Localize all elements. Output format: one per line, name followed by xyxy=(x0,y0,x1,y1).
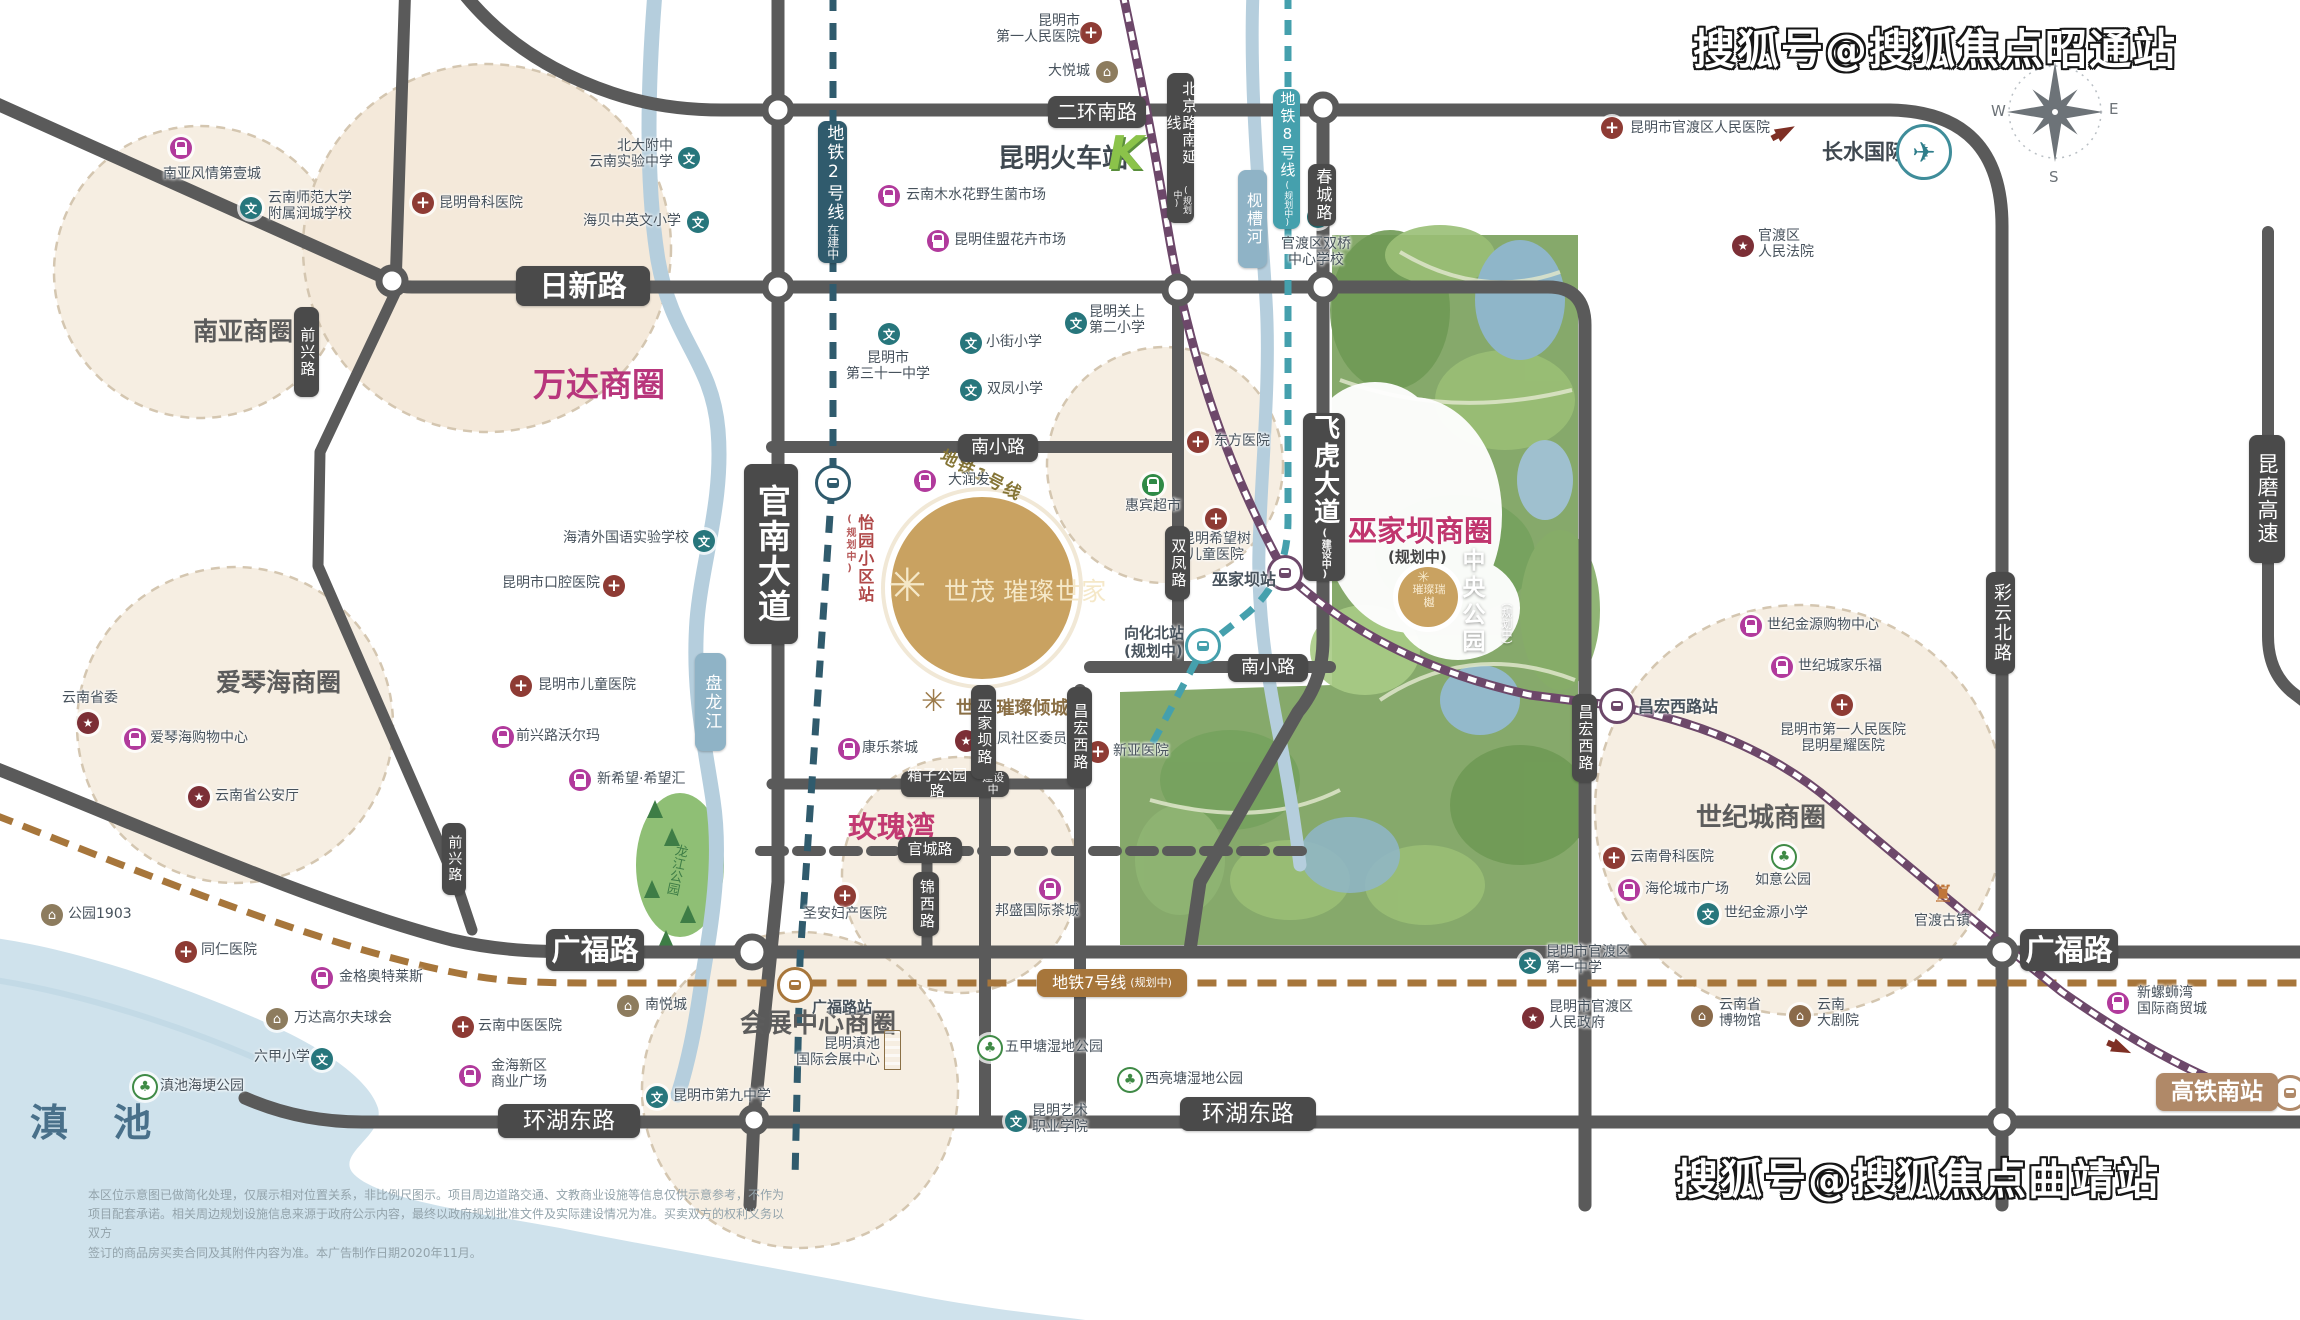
poi-label: 昆明市第一人民医院昆明星耀医院 xyxy=(1780,722,1906,754)
museum-icon: ⌂ xyxy=(1691,1005,1713,1027)
gov-icon: ★ xyxy=(188,786,210,808)
poi-label: 昆明市第三十一中学 xyxy=(846,350,930,382)
map-label-pill: 环湖东路 xyxy=(1180,1097,1316,1131)
shop-icon xyxy=(1740,615,1762,637)
airplane-glyph: ✈ xyxy=(1912,136,1935,169)
metro-station-label: 广福路站 xyxy=(812,998,872,1016)
bldg-icon: ⌂ xyxy=(1096,61,1118,83)
metro-station-label: 昌宏西路站 xyxy=(1638,697,1718,716)
shop-icon xyxy=(838,738,860,760)
school-icon: 文 xyxy=(678,147,700,169)
map-label-pill: 昌宏西路 xyxy=(1067,687,1092,787)
central-park-status: （规划中） xyxy=(1498,596,1514,651)
shop-icon xyxy=(170,137,192,159)
disclaimer-line-2: 项目配套承诺。相关周边规划设施信息来源于政府公示内容，最终以政府规划批准文件及实… xyxy=(88,1205,788,1243)
map-label-pill: 官南大道 xyxy=(744,464,798,644)
poi-label: 北大附中云南实验中学 xyxy=(589,138,673,170)
wujiaba-circle-status: (规划中) xyxy=(1388,546,1447,567)
map-label-pill: 锦西路 xyxy=(913,872,939,936)
metro-station-label: 怡园小区站(规划中) xyxy=(843,514,874,604)
poi-label: 海伦城市广场 xyxy=(1645,881,1729,897)
metro-station-icon xyxy=(777,967,813,1003)
hospital-icon: + xyxy=(510,675,532,697)
central-park-label: 中央公园 xyxy=(1454,548,1488,656)
map-label-pill: 枧槽河 xyxy=(1238,170,1267,268)
poi-label: 海清外国语实验学校 xyxy=(563,530,689,546)
metro-station-label: 巫家坝站 xyxy=(1212,570,1276,589)
poi-label: 海贝中英文小学 xyxy=(583,213,681,229)
poi-label: 圣安妇产医院 xyxy=(803,906,887,922)
area-title: 爱琴海商圈 xyxy=(216,663,341,699)
shop-icon xyxy=(2107,992,2129,1014)
map-label-pill: 春城路 xyxy=(1308,164,1336,226)
area-title: 世纪城商圈 xyxy=(1696,797,1826,834)
school-icon: 文 xyxy=(1005,1110,1027,1132)
school-icon: 文 xyxy=(240,197,262,219)
poi-label: 邦盛国际茶城 xyxy=(995,903,1079,919)
park-icon: ♣ xyxy=(1773,846,1795,868)
hospital-icon: + xyxy=(1080,22,1102,44)
poi-label: 昆明市儿童医院 xyxy=(538,677,636,693)
poi-label: 同仁医院 xyxy=(201,942,257,958)
poi-label: 昆明市官渡区人民政府 xyxy=(1549,999,1633,1031)
poi-label: 昆明希望树儿童医院 xyxy=(1181,531,1251,563)
poi-label: 云南大剧院 xyxy=(1817,997,1859,1029)
bldg-icon: ⌂ xyxy=(617,995,639,1017)
poi-label: 昆明市官渡区第一中学 xyxy=(1546,944,1630,976)
poi-label: 如意公园 xyxy=(1755,872,1811,888)
poi-label: 南亚风情第壹城 xyxy=(163,166,261,182)
map-label-pill: 环湖东路 xyxy=(498,1104,640,1138)
poi-label: 惠宾超市 xyxy=(1125,498,1181,514)
compass-west-label: W xyxy=(1991,102,2006,120)
poi-label: 大悦城 xyxy=(1048,63,1090,79)
poi-label: 云南中医医院 xyxy=(478,1018,562,1034)
hospital-icon: + xyxy=(1831,694,1853,716)
hospital-icon: + xyxy=(603,575,625,597)
shop-icon xyxy=(569,769,591,791)
shop-icon xyxy=(124,728,146,750)
map-label-pill: 北京路南延线(规划中) xyxy=(1167,73,1194,223)
school-icon: 文 xyxy=(1519,952,1541,974)
shop-icon xyxy=(1618,879,1640,901)
map-label-pill: 昆磨高速 xyxy=(2249,435,2285,563)
watermark-top: 搜狐号@搜狐焦点昭通站 xyxy=(1693,16,2177,77)
school-icon: 文 xyxy=(878,323,900,345)
poi-label: 云南省委 xyxy=(62,690,118,706)
poi-label: 新希望·希望汇 xyxy=(597,771,685,787)
poi-label: 世纪金源小学 xyxy=(1724,905,1808,921)
shop-icon xyxy=(1039,878,1061,900)
project-sub-flower-icon: ✳ xyxy=(921,684,946,719)
school-icon: 文 xyxy=(693,530,715,552)
map-label-pill: 彩云北路 xyxy=(1986,572,2015,674)
kunming-location-map: 搜狐号@搜狐焦点昭通站 搜狐号@搜狐焦点曲靖站 滇 池 本区位示意图已做简化处理… xyxy=(0,0,2300,1320)
map-label-pill: 地铁8号线(规划中) xyxy=(1273,89,1300,229)
metro-station-label: 向化北站(规划中) xyxy=(1124,624,1184,660)
poi-label: 昆明骨科医院 xyxy=(439,195,523,211)
poi-label: 云南木水花野生菌市场 xyxy=(906,187,1046,203)
shop-icon xyxy=(311,967,333,989)
map-label-pill: 双凤路 xyxy=(1165,526,1190,600)
map-label-pill: 地铁2号线在建中 xyxy=(818,121,847,263)
map-label-pill: 官城路 xyxy=(898,837,962,863)
park-icon: ♣ xyxy=(134,1076,156,1098)
shop-icon xyxy=(927,230,949,252)
poi-label: 昆明滇池国际会展中心 xyxy=(796,1036,880,1068)
poi-label: 昆明关上第二小学 xyxy=(1089,304,1145,336)
watermark-bottom: 搜狐号@搜狐焦点曲靖站 xyxy=(1676,1146,2160,1207)
poi-label: 云南省博物馆 xyxy=(1719,997,1761,1029)
metro-station-icon xyxy=(1599,688,1635,724)
bldg-icon: ⌂ xyxy=(41,904,63,926)
poi-label: 南悦城 xyxy=(645,997,687,1013)
poi-label: 新亚医院 xyxy=(1113,743,1169,759)
hospital-icon: + xyxy=(1603,847,1625,869)
poi-label: 万达高尔夫球会 xyxy=(294,1010,392,1026)
metro-station-icon xyxy=(1185,628,1221,664)
project-flower-icon: ✳ xyxy=(888,558,927,612)
bldg-icon: ⌂ xyxy=(266,1008,288,1030)
shop-icon xyxy=(914,470,936,492)
temple-icon: ♜ xyxy=(1932,883,1954,905)
hospital-icon: + xyxy=(175,941,197,963)
poi-label: 金海新区商业广场 xyxy=(491,1058,547,1090)
poi-label: 东方医院 xyxy=(1214,433,1270,449)
poi-label: 滇池海埂公园 xyxy=(160,1078,244,1094)
poi-label: 昆明市第一人民医院 xyxy=(996,13,1080,45)
poi-label: 小街小学 xyxy=(986,334,1042,350)
school-icon: 文 xyxy=(960,332,982,354)
poi-label: 新螺蛳湾国际商贸城 xyxy=(2137,985,2207,1017)
map-label-pill: 南小路 xyxy=(958,434,1038,462)
map-label-pill: 广福路 xyxy=(2020,929,2118,971)
poi-label: 世纪金源购物中心 xyxy=(1767,617,1879,633)
k-railway-logo: K xyxy=(1108,126,1144,180)
museum-icon: ⌂ xyxy=(1789,1005,1811,1027)
poi-label: 官渡区人民法院 xyxy=(1758,228,1814,260)
hospital-icon: + xyxy=(1205,508,1227,530)
shop-icon xyxy=(492,726,514,748)
poi-label: 云南师范大学附属润城学校 xyxy=(268,190,352,222)
map-label-pill: 南小路 xyxy=(1228,654,1308,682)
poi-label: 昆明艺术职业学院 xyxy=(1032,1103,1088,1135)
hospital-icon: + xyxy=(412,192,434,214)
poi-label: 昆明市口腔医院 xyxy=(502,575,600,591)
poi-label: 云南骨科医院 xyxy=(1630,849,1714,865)
school-icon: 文 xyxy=(1065,312,1087,334)
poi-label: 官渡古镇 xyxy=(1914,913,1970,929)
poi-label: 云南省公安厅 xyxy=(215,788,299,804)
expo-center-icon xyxy=(884,1030,901,1070)
gov-icon: ★ xyxy=(1732,235,1754,257)
poi-label: 前兴路沃尔玛 xyxy=(516,728,600,744)
shopg-icon xyxy=(1142,474,1164,496)
poi-label: 康乐茶城 xyxy=(862,740,918,756)
hospital-icon: + xyxy=(452,1016,474,1038)
poi-label: 公园1903 xyxy=(68,906,132,922)
park-icon: ♣ xyxy=(979,1037,1001,1059)
poi-label: 大润发 xyxy=(948,472,990,488)
gov-icon: ★ xyxy=(77,712,99,734)
map-label-pill: 前兴路 xyxy=(442,823,466,895)
poi-label: 昆明市官渡区人民医院 xyxy=(1630,120,1770,136)
map-label-pill: 盘龙江 xyxy=(695,653,726,751)
map-label-pill: 高铁南站 xyxy=(2156,1073,2278,1111)
map-label-pill: 日新路 xyxy=(516,266,650,306)
map-label-pill: 昌宏西路 xyxy=(1572,694,1597,782)
school-icon: 文 xyxy=(311,1048,333,1070)
poi-label: 官渡区双桥中心学校 xyxy=(1281,236,1351,268)
hospital-icon: + xyxy=(1601,117,1623,139)
poi-label: 西亮塘湿地公园 xyxy=(1145,1071,1243,1087)
poi-label: 爱琴海购物中心 xyxy=(150,730,248,746)
map-label-pill: 前兴路 xyxy=(294,307,319,397)
gov-icon: ★ xyxy=(1522,1007,1544,1029)
disclaimer-text: 本区位示意图已做简化处理，仅展示相对位置关系，非比例尺图示。项目周边道路交通、文… xyxy=(88,1186,788,1263)
poi-label: 双凤小学 xyxy=(987,381,1043,397)
shop-icon xyxy=(878,185,900,207)
hospital-icon: + xyxy=(1187,431,1209,453)
area-title: 万达商圈 xyxy=(533,358,665,406)
shop-icon xyxy=(1771,656,1793,678)
school-icon: 文 xyxy=(1697,903,1719,925)
compass-south-label: S xyxy=(2049,168,2059,186)
airport-icon: ✈ xyxy=(1896,124,1952,180)
poi-label: 昆明佳盟花卉市场 xyxy=(954,232,1066,248)
map-label-pill: 地铁7号线(规划中) xyxy=(1037,969,1187,997)
school-icon: 文 xyxy=(646,1086,668,1108)
metro-station-icon xyxy=(815,465,851,501)
map-label-pill: 广福路 xyxy=(546,929,644,971)
map-label-pill: 巫家坝路 xyxy=(971,685,996,779)
school-icon: 文 xyxy=(687,211,709,233)
poi-label: 六甲小学 xyxy=(254,1049,310,1065)
disclaimer-line-1: 本区位示意图已做简化处理，仅展示相对位置关系，非比例尺图示。项目周边道路交通、文… xyxy=(88,1186,788,1205)
poi-label: 昆明市第九中学 xyxy=(673,1088,771,1104)
project-small-name: 璀璨瑞樾 xyxy=(1412,584,1446,610)
hospital-icon: + xyxy=(834,885,856,907)
project-main-name: 世茂 璀璨世家 xyxy=(944,572,1107,608)
area-title: 南亚商圈 xyxy=(193,312,293,348)
lake-label: 滇 池 xyxy=(30,1092,167,1147)
wujiaba-circle-label: 巫家坝商圈 xyxy=(1348,508,1493,550)
disclaimer-line-3: 签订的商品房买卖合同及其附件内容为准。本广告制作日期2020年11月。 xyxy=(88,1244,788,1263)
park-icon: ♣ xyxy=(1119,1069,1141,1091)
poi-label: 金格奥特莱斯 xyxy=(339,969,423,985)
poi-label: 世纪城家乐福 xyxy=(1798,658,1882,674)
map-label-pill: 飞虎大道(建设中) xyxy=(1303,413,1345,581)
poi-label: 五甲塘湿地公园 xyxy=(1005,1039,1103,1055)
shop-icon xyxy=(459,1065,481,1087)
school-icon: 文 xyxy=(960,379,982,401)
compass-east-label: E xyxy=(2109,100,2118,118)
map-label-pill: 二环南路 xyxy=(1048,96,1146,128)
